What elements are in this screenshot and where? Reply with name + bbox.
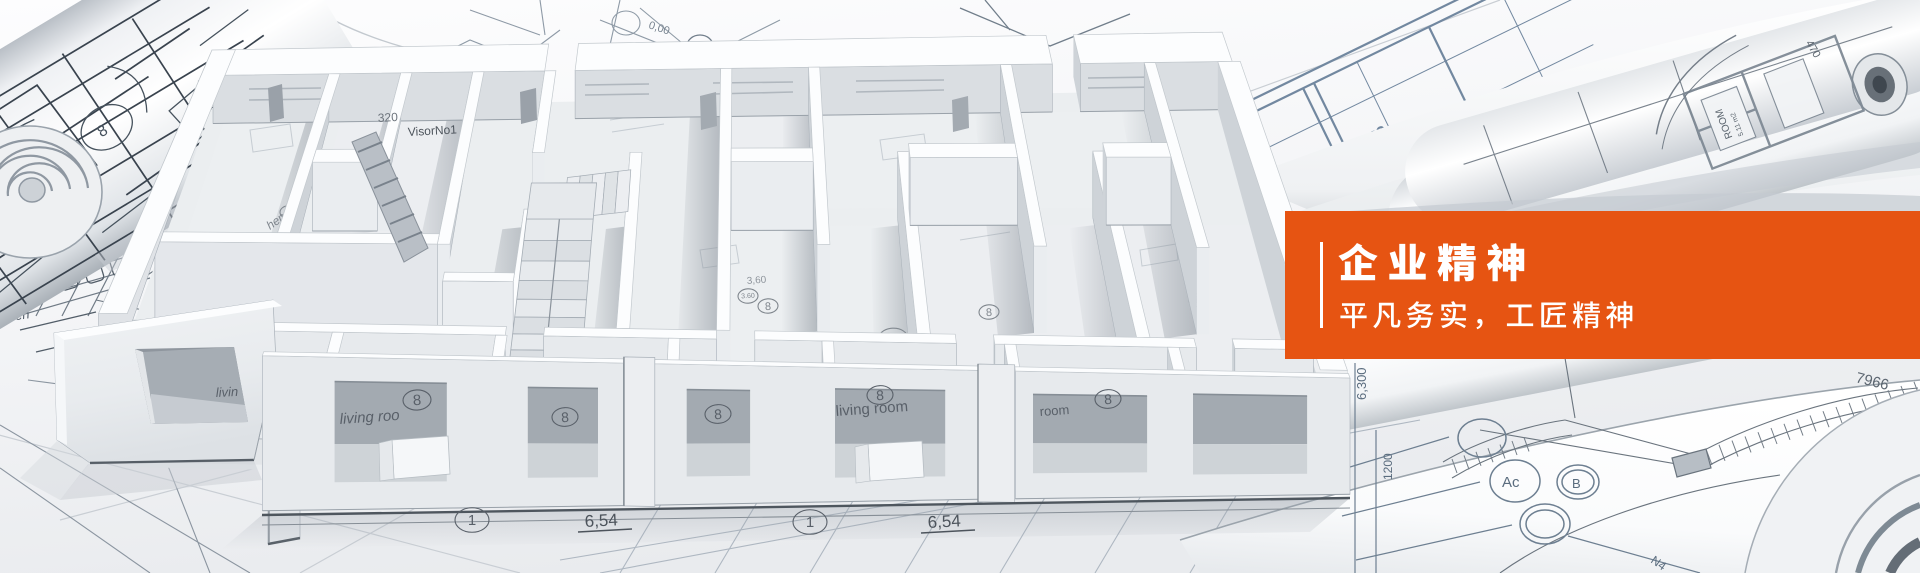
svg-text:VisorNo1: VisorNo1 [407, 122, 457, 139]
svg-text:8: 8 [561, 409, 570, 425]
svg-text:Ac: Ac [1502, 474, 1520, 491]
svg-text:B: B [1572, 476, 1581, 491]
svg-text:6,54: 6,54 [584, 510, 618, 531]
svg-text:8: 8 [876, 387, 885, 403]
svg-text:livin: livin [215, 384, 238, 400]
svg-text:8: 8 [765, 301, 772, 313]
svg-text:8: 8 [412, 392, 421, 409]
svg-text:1: 1 [806, 514, 814, 531]
svg-text:6,300: 6,300 [1354, 367, 1369, 400]
svg-text:6,54: 6,54 [927, 511, 961, 532]
svg-text:1200: 1200 [1381, 453, 1395, 480]
svg-text:room: room [1039, 402, 1070, 419]
svg-text:320: 320 [377, 110, 398, 125]
svg-text:8: 8 [986, 307, 993, 319]
svg-text:3,60: 3,60 [746, 275, 767, 287]
svg-text:3.60: 3.60 [741, 293, 755, 301]
svg-text:1: 1 [468, 512, 476, 529]
svg-text:8: 8 [714, 406, 723, 422]
svg-text:8: 8 [1104, 391, 1113, 407]
